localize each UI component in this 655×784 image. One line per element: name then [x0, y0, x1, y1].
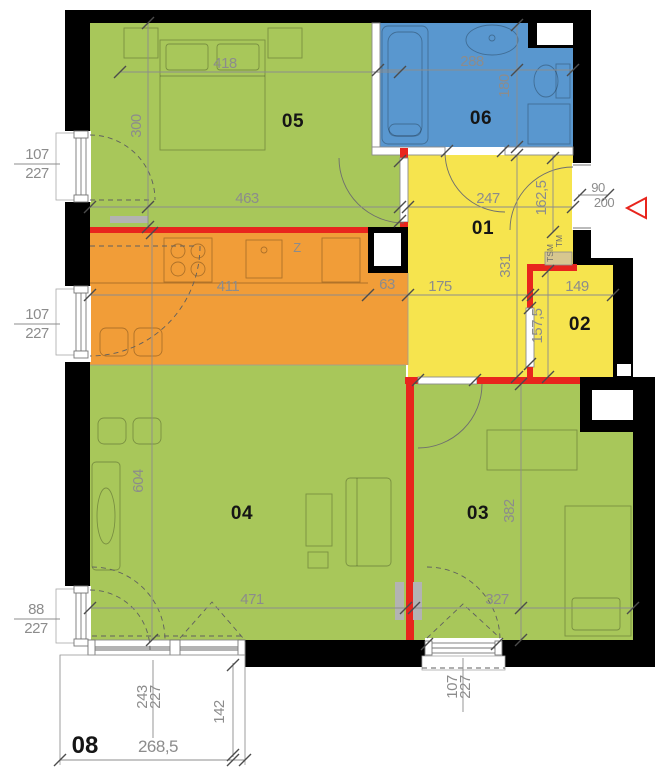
- floor-plan-drawing: 05 06 01 02 04 03 08 418 288 463 247 411…: [0, 0, 655, 784]
- room-label-08: 08: [72, 732, 99, 759]
- dim-300: 300: [128, 114, 145, 138]
- shaft-kitchen-void: [374, 233, 401, 266]
- door-opening-room03: [418, 377, 477, 384]
- slider-panel: [179, 646, 239, 651]
- wall-room02-right: [613, 265, 633, 380]
- wall-right-below-entry: [573, 230, 591, 265]
- dim-288: 288: [460, 53, 484, 70]
- dim-162-5: 162,5: [533, 180, 550, 215]
- dim-227: 227: [147, 685, 164, 709]
- label-z: Z: [293, 240, 301, 255]
- wall-right-upper: [573, 10, 591, 163]
- label-tm: TM: [554, 235, 564, 247]
- dim-268-5: 268,5: [138, 737, 178, 756]
- dim-175: 175: [428, 278, 452, 295]
- wall-niche-top-right: [537, 23, 573, 45]
- dim-327: 327: [485, 591, 509, 608]
- wall-niche-east: [592, 390, 633, 420]
- radiator-room05: [110, 216, 148, 223]
- red-wall-room04-room03: [406, 384, 414, 640]
- slider-cap: [88, 640, 95, 655]
- rail-block: [413, 582, 422, 620]
- dim-471: 471: [240, 591, 264, 608]
- floor-plan-page: 05 06 01 02 04 03 08 418 288 463 247 411…: [0, 0, 655, 784]
- dim-463: 463: [235, 190, 259, 207]
- dim-227: 227: [24, 620, 48, 637]
- slider-panel: [94, 646, 172, 651]
- window-cap: [74, 195, 88, 202]
- window-cap: [74, 639, 88, 646]
- red-wall-kitchen: [90, 227, 368, 233]
- window-cap: [74, 286, 88, 293]
- entry-arrow-icon: [627, 198, 646, 218]
- room-areas: [90, 23, 633, 640]
- window-room03: [422, 638, 505, 670]
- wall-step-east: [590, 258, 633, 265]
- red-wall-hall-bottom-west: [405, 377, 418, 384]
- window-cap: [74, 131, 88, 138]
- dim-200: 200: [594, 195, 614, 210]
- dim-331: 331: [497, 254, 514, 278]
- dim-149: 149: [565, 278, 589, 295]
- room-label-03: 03: [467, 503, 489, 524]
- dim-418: 418: [213, 55, 237, 72]
- wall-bottom-west: [245, 640, 427, 667]
- dim-227: 227: [25, 325, 49, 342]
- red-wall-room02-left-upper: [527, 271, 533, 308]
- dim-107: 107: [25, 306, 49, 323]
- slider-cap: [170, 640, 180, 655]
- rail-block: [395, 582, 404, 620]
- room-label-05: 05: [282, 111, 304, 132]
- room-label-02: 02: [569, 314, 591, 335]
- entry-gap: [572, 163, 592, 230]
- red-wall-hall-bottom-east: [477, 377, 580, 384]
- room-label-01: 01: [472, 218, 494, 239]
- window-room05: [56, 131, 91, 202]
- dim-382: 382: [501, 499, 518, 523]
- wall-bottom-east: [500, 640, 633, 667]
- dim-157-5: 157,5: [529, 308, 546, 343]
- door-opening-room05: [400, 158, 408, 222]
- dim-63: 63: [379, 276, 395, 293]
- dim-227: 227: [457, 675, 474, 699]
- wall-room05-room06: [372, 23, 380, 147]
- wall-top: [65, 10, 591, 23]
- wall-niche-room02: [617, 364, 631, 376]
- dim-227: 227: [25, 165, 49, 182]
- dim-90: 90: [591, 180, 605, 195]
- room-label-06: 06: [470, 108, 492, 129]
- label-tsm: TSM: [545, 244, 555, 262]
- dim-88: 88: [28, 601, 44, 618]
- dim-180: 180: [496, 74, 513, 98]
- dim-411: 411: [217, 278, 240, 295]
- wall-room06-room01-west: [372, 147, 445, 155]
- wall-right-lower: [633, 432, 655, 667]
- entry-door-opening: [572, 163, 592, 230]
- dim-604: 604: [130, 469, 147, 493]
- dim-107: 107: [25, 146, 49, 163]
- window-cap: [74, 351, 88, 358]
- window-cap: [74, 586, 88, 593]
- slider-cap: [238, 640, 245, 655]
- room-label-04: 04: [231, 503, 253, 524]
- entry-marker: [627, 198, 646, 218]
- window-sill: [56, 289, 78, 355]
- window-sill: [56, 589, 78, 643]
- dim-142: 142: [211, 700, 228, 724]
- red-wall-room02-left-lower: [527, 367, 533, 377]
- window-kitchen: [56, 286, 91, 362]
- dim-247: 247: [476, 190, 500, 207]
- window-room04: [56, 586, 91, 648]
- window-sill: [56, 133, 78, 200]
